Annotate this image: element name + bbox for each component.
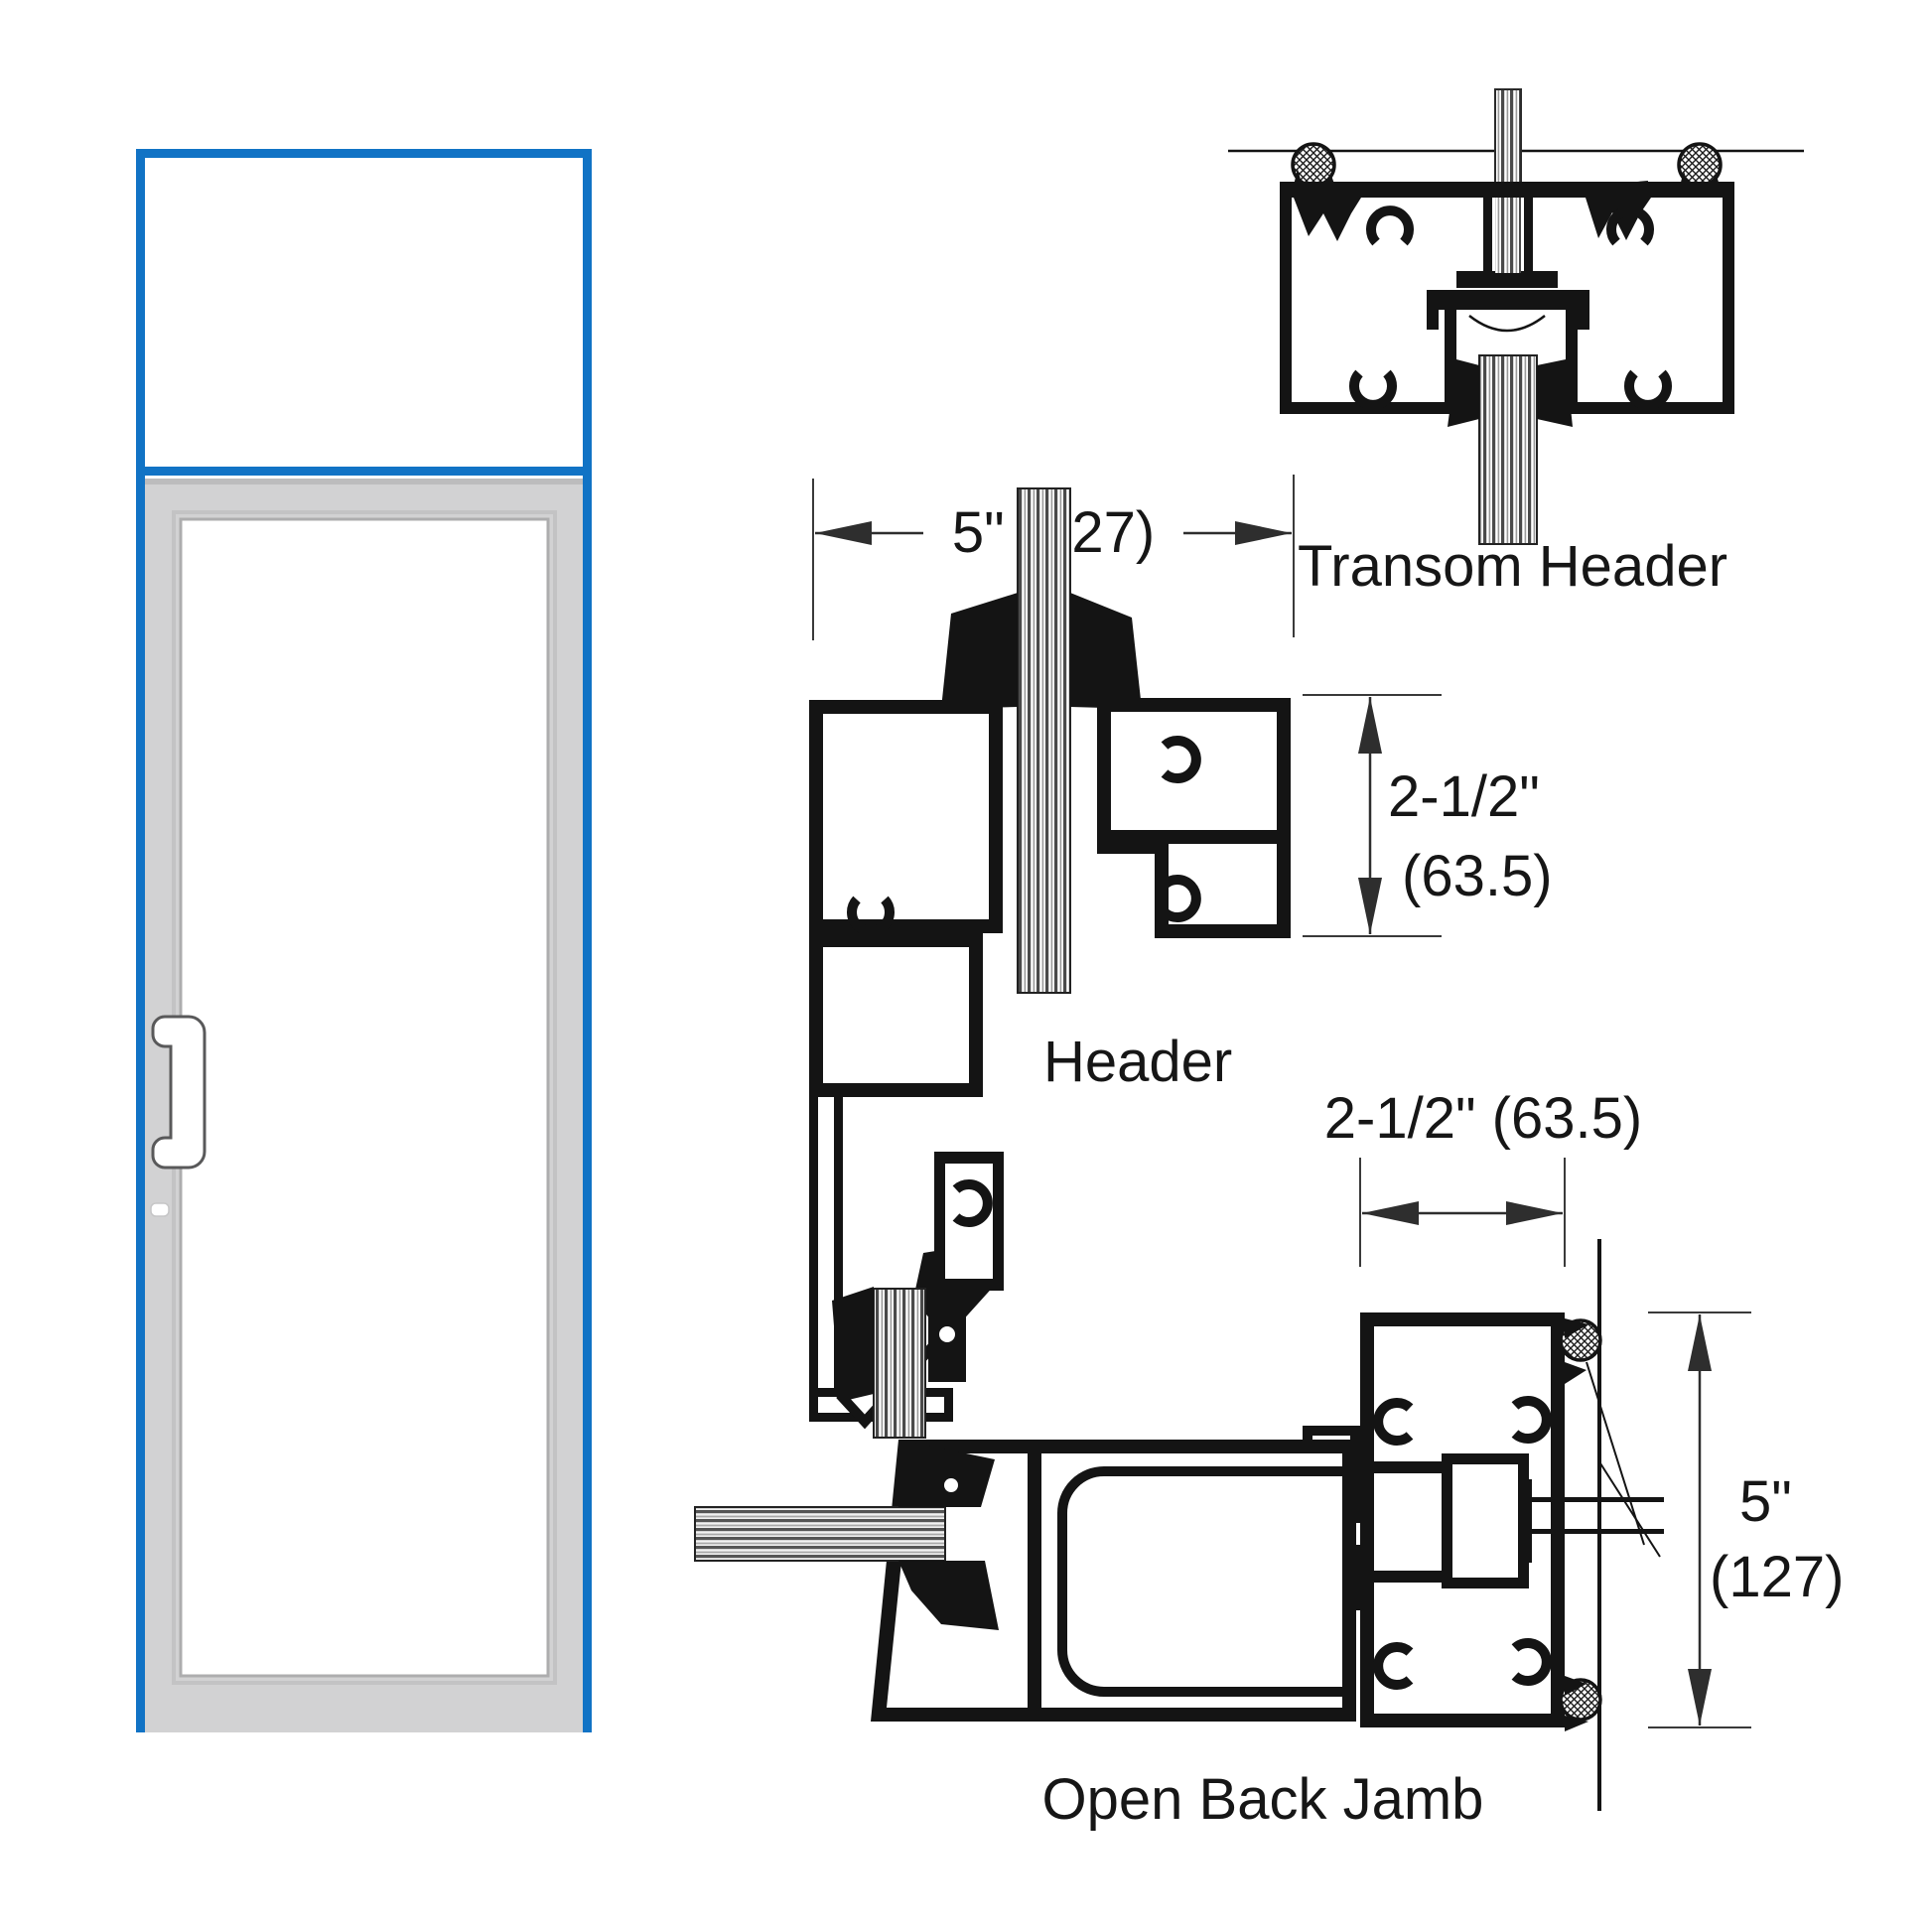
glass-in-web — [1495, 198, 1521, 273]
header-section: 5" (127) Header — [809, 475, 1553, 1438]
door-top-cap — [1427, 290, 1589, 310]
screw-head-icon — [939, 1326, 955, 1342]
cavity — [823, 947, 969, 1083]
lock-indicator — [151, 1203, 169, 1216]
arrow-left-icon — [1362, 1201, 1419, 1225]
jamb-depth-dim-line1: 5" — [1739, 1469, 1792, 1534]
fastener-diagonal — [1600, 1463, 1660, 1557]
arrow-up-icon — [1688, 1314, 1712, 1371]
fastener-line — [1532, 1497, 1664, 1502]
mullion-flange — [1456, 271, 1558, 288]
header-face-dim-line2: (63.5) — [1402, 844, 1553, 908]
screw-head-icon — [944, 1478, 958, 1492]
catalog-figure: Transom Header 5" (127) — [0, 0, 1932, 1932]
header-label: Header — [1043, 1030, 1232, 1094]
transom-header-section: Transom Header — [1228, 89, 1804, 599]
tube-wall — [1374, 1571, 1442, 1583]
left-jamb-line — [136, 476, 145, 1732]
cap-hook — [1427, 310, 1439, 330]
mullion-web — [1524, 198, 1533, 273]
mullion-web — [1483, 198, 1492, 273]
door-elevation — [136, 149, 592, 1732]
arrow-right-icon — [1506, 1201, 1563, 1225]
glazing-clamp — [941, 593, 1018, 709]
door-glass-hatch — [1479, 355, 1537, 544]
cap-hook — [1578, 310, 1589, 330]
door-glass-hatch — [874, 1289, 925, 1438]
arrow-down-icon — [1688, 1669, 1712, 1725]
header-face-dim-line1: 2-1/2" — [1388, 764, 1540, 829]
anchor-head — [1518, 1479, 1532, 1563]
door-panel — [136, 476, 592, 1732]
glass-hatch — [1018, 488, 1070, 993]
transom-glass — [145, 158, 583, 467]
jamb-depth-dim-line2: (127) — [1710, 1545, 1844, 1609]
door-glass — [181, 519, 548, 1676]
dim-jamb-face: 2-1/2" (63.5) — [1324, 1086, 1642, 1267]
transom-panel — [136, 149, 592, 476]
figure-drawing: Transom Header 5" (127) — [0, 0, 1932, 1932]
cavity — [823, 714, 989, 919]
arrow-up-icon — [1358, 697, 1382, 754]
jamb-face-dim: 2-1/2" (63.5) — [1324, 1086, 1642, 1151]
arrow-down-icon — [1358, 878, 1382, 934]
door-glass-hatch — [695, 1507, 945, 1561]
wall-line — [1597, 1239, 1601, 1811]
right-jamb-line — [583, 476, 592, 1732]
arrow-left-icon — [815, 521, 872, 545]
tube-wall — [1374, 1461, 1442, 1473]
open-back-jamb-section: 2-1/2" (63.5) — [695, 1086, 1844, 1832]
leg-channel — [818, 1097, 834, 1410]
transom-header-label: Transom Header — [1298, 534, 1727, 599]
stile-wall — [1028, 1453, 1041, 1708]
dim-jamb-depth: 5" (127) — [1648, 1312, 1844, 1727]
arrow-right-icon — [1235, 521, 1292, 545]
open-back-jamb-label: Open Back Jamb — [1042, 1767, 1484, 1832]
internal-wall — [1111, 830, 1277, 844]
cavity — [1452, 1464, 1518, 1578]
gasket-wedge — [1565, 1362, 1587, 1384]
glazing-clamp — [1070, 593, 1142, 709]
dim-header-face: 2-1/2" (63.5) — [1303, 695, 1553, 936]
door-frame-top-edge — [145, 479, 583, 484]
